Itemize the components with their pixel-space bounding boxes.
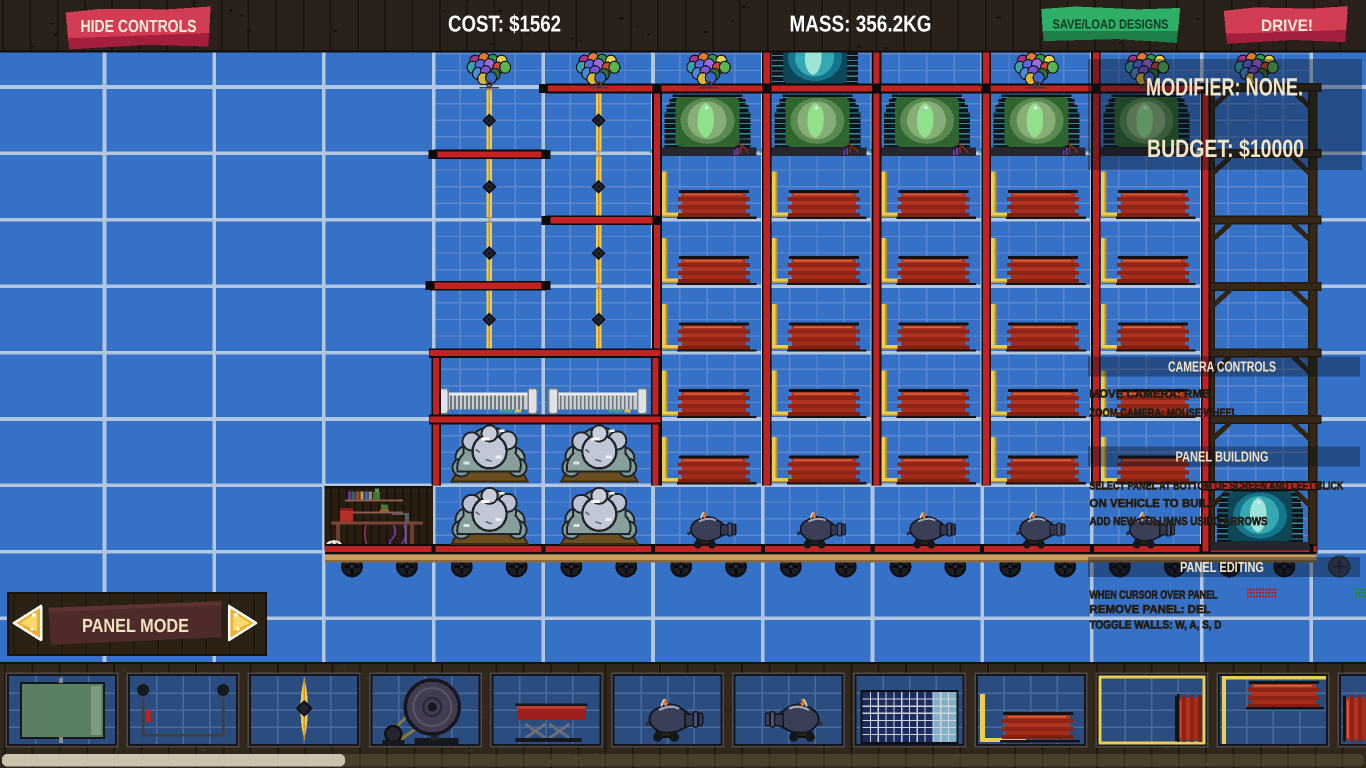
svg-text:REMOVE PANEL: DEL: REMOVE PANEL: DEL [1090, 604, 1211, 616]
svg-text:BUDGET: $10000: BUDGET: $10000 [1147, 135, 1304, 163]
svg-text:ON VEHICLE TO BUILD: ON VEHICLE TO BUILD [1090, 498, 1218, 510]
svg-text:TOGGLE WALLS: W, A, S, D: TOGGLE WALLS: W, A, S, D [1090, 620, 1222, 632]
svg-text:CAMERA CONTROLS: CAMERA CONTROLS [1168, 360, 1276, 376]
svg-text:PANEL BUILDING: PANEL BUILDING [1176, 450, 1269, 466]
svg-text:DRIVE!: DRIVE! [1261, 17, 1313, 35]
svg-text:WHEN CURSOR OVER PANEL: WHEN CURSOR OVER PANEL [1090, 590, 1218, 602]
svg-text:HIDE CONTROLS: HIDE CONTROLS [81, 16, 197, 36]
svg-text:MOVE CAMERA: RMB: MOVE CAMERA: RMB [1090, 389, 1211, 401]
svg-text:PANEL EDITING: PANEL EDITING [1180, 560, 1264, 576]
svg-text:COST: $1562: COST: $1562 [448, 11, 561, 37]
svg-text:SELECT PANEL AT BOTTOM OF SCRE: SELECT PANEL AT BOTTOM OF SCREEN AND LEF… [1090, 481, 1345, 493]
svg-text:ADD NEW COLUMNS USING ARROWS: ADD NEW COLUMNS USING ARROWS [1090, 516, 1268, 528]
svg-text:ZOOM CAMERA: MOUSE WHEEL: ZOOM CAMERA: MOUSE WHEEL [1090, 408, 1238, 420]
svg-text:MASS: 356.2KG: MASS: 356.2KG [790, 11, 932, 37]
svg-text:MODIFIER: NONE.: MODIFIER: NONE. [1146, 74, 1303, 102]
svg-text:PANEL MODE: PANEL MODE [82, 616, 189, 637]
svg-text:SAVE/LOAD DESIGNS: SAVE/LOAD DESIGNS [1053, 17, 1169, 32]
